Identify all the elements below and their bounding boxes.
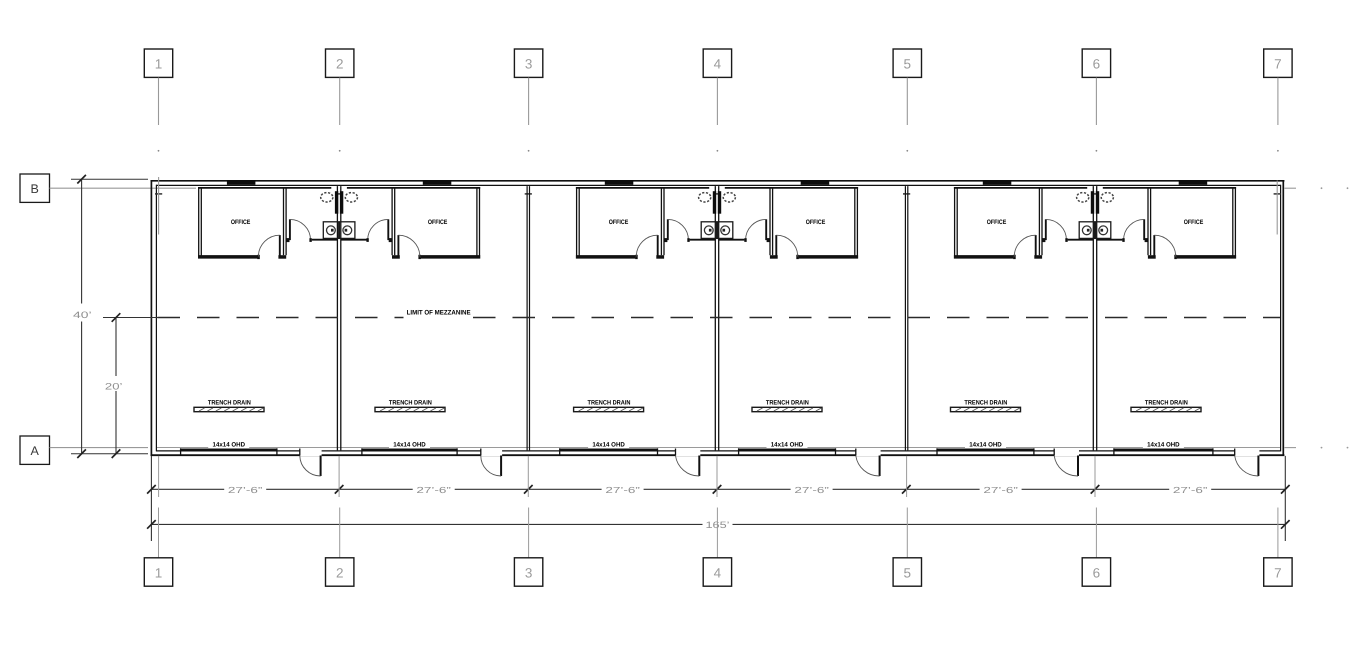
svg-text:7: 7 [1274,565,1282,580]
svg-text:2: 2 [336,565,344,580]
svg-text:OFFICE: OFFICE [231,219,251,226]
svg-text:14x14 OHD: 14x14 OHD [771,441,804,448]
svg-text:TRENCH DRAIN: TRENCH DRAIN [208,399,251,406]
svg-text:TRENCH DRAIN: TRENCH DRAIN [766,399,809,406]
svg-text:OFFICE: OFFICE [428,219,448,226]
svg-text:6: 6 [1093,57,1101,72]
svg-text:LIMIT OF MEZZANINE: LIMIT OF MEZZANINE [407,309,472,316]
svg-text:4: 4 [714,565,722,580]
svg-text:40’: 40’ [73,310,92,320]
svg-text:7: 7 [1274,57,1282,72]
svg-text:5: 5 [904,565,912,580]
svg-text:1: 1 [155,565,163,580]
svg-text:OFFICE: OFFICE [987,219,1007,226]
svg-text:20’: 20’ [105,382,123,392]
svg-text:4: 4 [714,57,722,72]
svg-text:B: B [31,182,39,196]
svg-text:TRENCH DRAIN: TRENCH DRAIN [1145,399,1188,406]
svg-text:6: 6 [1093,565,1101,580]
svg-text:14x14 OHD: 14x14 OHD [213,441,246,448]
svg-text:27’-6”: 27’-6” [605,485,640,495]
svg-text:14x14 OHD: 14x14 OHD [969,441,1002,448]
svg-text:27’-6”: 27’-6” [228,485,263,495]
svg-text:TRENCH DRAIN: TRENCH DRAIN [389,399,432,406]
svg-text:14x14 OHD: 14x14 OHD [592,441,625,448]
svg-text:A: A [31,444,40,458]
svg-text:1: 1 [155,57,163,72]
svg-text:TRENCH DRAIN: TRENCH DRAIN [588,399,631,406]
svg-text:27’-6”: 27’-6” [416,485,451,495]
svg-text:OFFICE: OFFICE [806,219,826,226]
svg-text:3: 3 [525,565,533,580]
svg-text:OFFICE: OFFICE [1184,219,1204,226]
svg-text:OFFICE: OFFICE [609,219,629,226]
svg-text:2: 2 [336,57,344,72]
svg-text:TRENCH DRAIN: TRENCH DRAIN [964,399,1007,406]
svg-text:3: 3 [525,57,533,72]
svg-text:14x14 OHD: 14x14 OHD [1147,441,1180,448]
svg-text:27’-6”: 27’-6” [1173,485,1208,495]
svg-text:27’-6”: 27’-6” [794,485,829,495]
svg-text:14x14 OHD: 14x14 OHD [393,441,426,448]
svg-text:5: 5 [904,57,912,72]
svg-text:27’-6”: 27’-6” [983,485,1018,495]
